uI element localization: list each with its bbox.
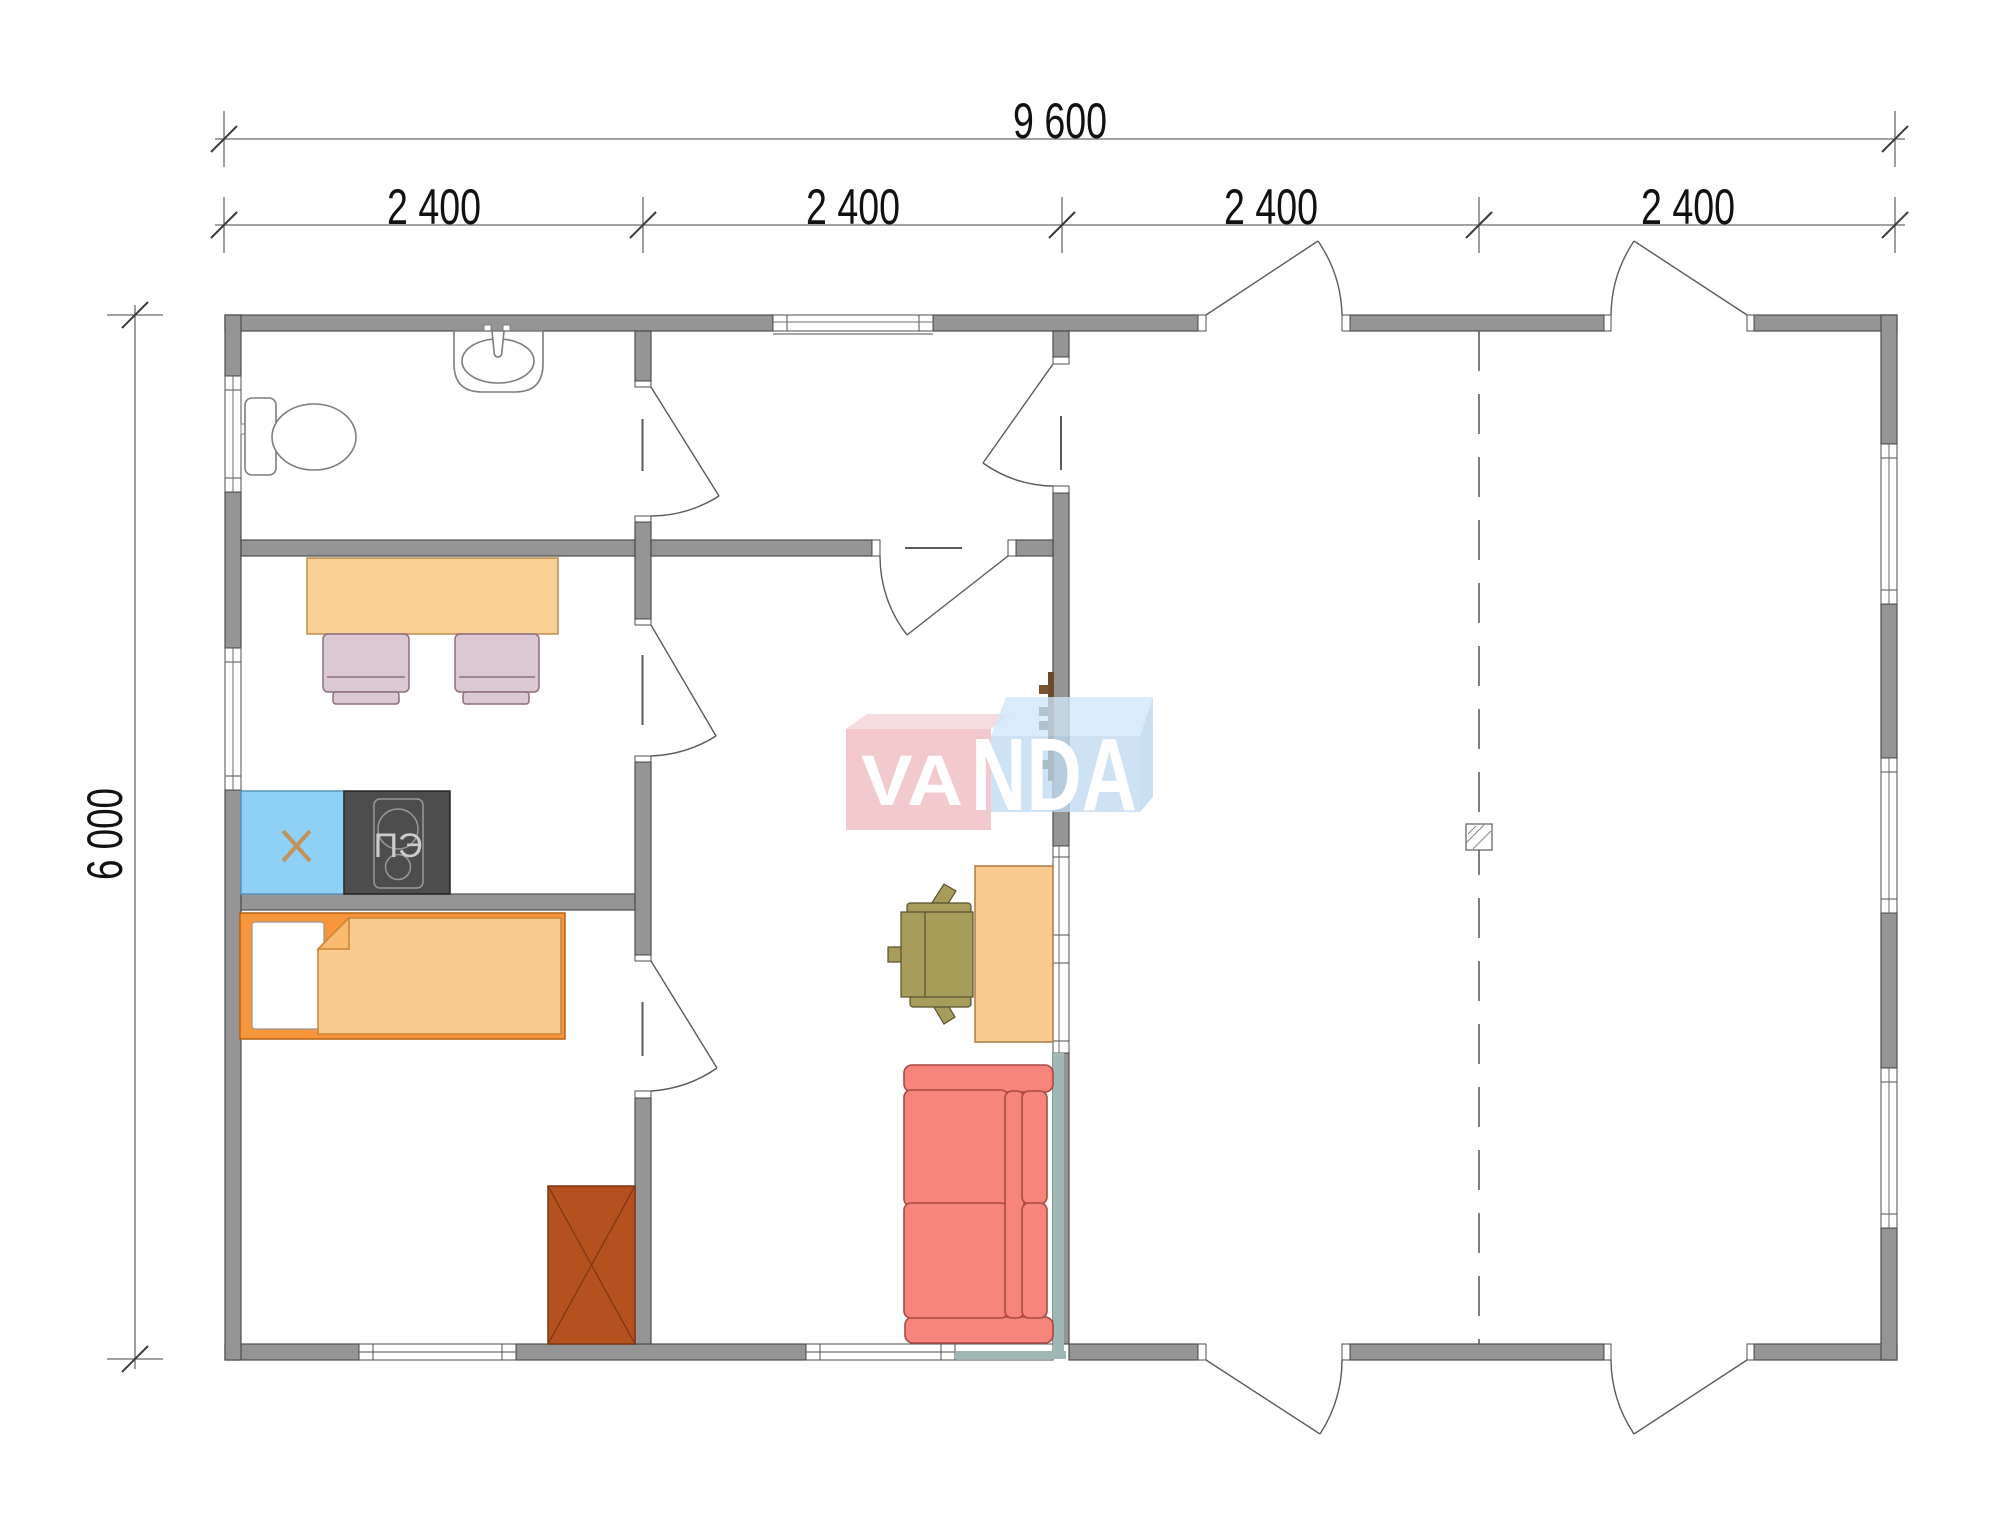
svg-text:NDA: NDA (971, 717, 1137, 832)
svg-text:2 400: 2 400 (387, 179, 481, 235)
svg-text:2 400: 2 400 (806, 179, 900, 235)
svg-text:ПЭ: ПЭ (374, 827, 423, 865)
svg-text:6 000: 6 000 (77, 788, 133, 880)
svg-text:2 400: 2 400 (1641, 179, 1735, 235)
svg-text:2 400: 2 400 (1224, 179, 1318, 235)
svg-text:VA: VA (861, 742, 963, 821)
svg-text:9 600: 9 600 (1013, 93, 1107, 149)
